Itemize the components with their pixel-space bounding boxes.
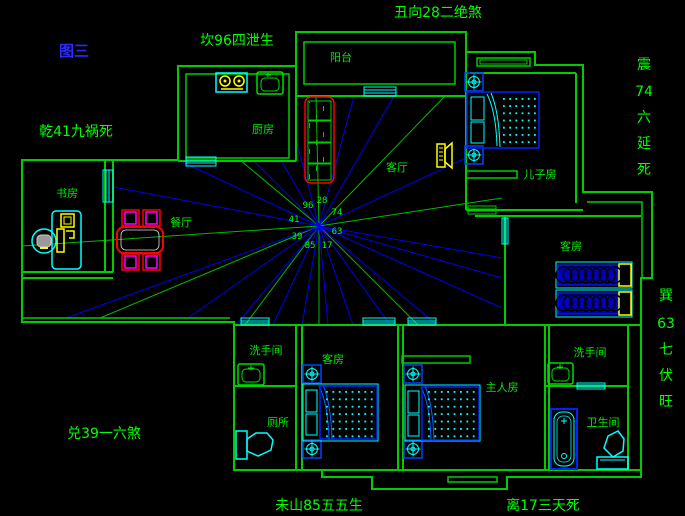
son-shelf	[466, 171, 517, 178]
stove	[216, 73, 247, 92]
guest-right-beds	[556, 262, 632, 317]
svg-text:延: 延	[637, 136, 651, 152]
guest-bottom-window	[363, 318, 395, 325]
kitchen-inner	[186, 74, 289, 158]
annotation-south-mountain: 未山85五五生	[275, 498, 363, 514]
annotation-south: 离17三天死	[506, 497, 580, 514]
svg-text:死: 死	[637, 162, 651, 178]
compass-number-w: 41	[289, 215, 300, 225]
compass-number-e: 63	[332, 227, 343, 237]
room-label-washroom-right: 洗手间	[574, 345, 607, 359]
fengshui-annotations: 图三 坎96四泄生 丑向28二绝煞 乾41九祸死 兑39一六煞 未山85五五生 …	[39, 5, 675, 514]
bathtub	[551, 409, 577, 469]
annotation-east: 震 74 六 延 死	[635, 57, 653, 178]
svg-text:震: 震	[637, 57, 651, 73]
room-label-washroom-left: 洗手间	[250, 343, 283, 357]
tv	[437, 143, 452, 168]
compass-number-se: 17	[322, 241, 333, 251]
porch-step	[448, 477, 497, 482]
compass-number-n: 28	[317, 196, 328, 206]
svg-text:七: 七	[659, 342, 673, 358]
sofa	[305, 97, 334, 183]
study-walls	[22, 160, 113, 278]
room-label-son: 儿子房	[524, 168, 557, 181]
compass-number-sw: 39	[292, 232, 303, 242]
entry-shelf	[477, 58, 530, 66]
lamp-icon	[465, 73, 483, 91]
room-label-guest-bottom: 客房	[322, 352, 344, 366]
svg-text:六: 六	[637, 110, 651, 126]
lamp-icon	[404, 440, 422, 458]
lamp-icon	[303, 440, 321, 458]
annotation-west-lower: 兑39一六煞	[67, 426, 141, 442]
svg-text:旺: 旺	[659, 394, 673, 410]
room-label-master: 主人房	[486, 381, 519, 394]
balcony-inner	[304, 42, 455, 84]
room-label-kitchen: 厨房	[252, 123, 274, 136]
lamp-icon	[303, 365, 321, 383]
ceiling-lamp-icons	[303, 73, 483, 458]
washroom-left-sink	[238, 364, 264, 385]
room-label-guest-right: 客房	[560, 239, 582, 253]
annotation-north: 坎96四泄生	[200, 33, 274, 49]
washroom-right-sink	[548, 363, 573, 384]
toilet-left	[236, 431, 273, 459]
son-bed	[467, 92, 539, 148]
entry-shelf-inner	[480, 60, 527, 64]
lamp-icon	[404, 365, 422, 383]
toilet-right	[597, 431, 628, 469]
room-label-balcony: 阳台	[330, 50, 352, 64]
room-label-bathroom: 卫生间	[587, 415, 620, 429]
dining-set	[117, 210, 163, 270]
cad-floorplan-canvas: 41 96 28 74 63 17 85 39 阳台 厨房 客厅 儿子房 书房 …	[0, 0, 685, 516]
floorplan-drawing: 41 96 28 74 63 17 85 39 阳台 厨房 客厅 儿子房 书房 …	[0, 0, 685, 516]
guest-bottom-bed	[303, 384, 378, 441]
room-label-living: 客厅	[386, 160, 408, 174]
annotation-southeast: 巽 63 七 伏 旺	[657, 288, 675, 410]
svg-text:63: 63	[657, 316, 675, 332]
living-balcony-window	[364, 87, 396, 96]
room-label-toilet: 厕所	[267, 416, 289, 429]
figure-label: 图三	[59, 42, 89, 60]
study-desk	[32, 211, 81, 269]
annotation-northeast: 丑向28二绝煞	[394, 5, 482, 21]
compass-number-ne: 74	[332, 208, 343, 218]
master-bed	[405, 385, 480, 441]
room-label-dining: 餐厅	[170, 215, 192, 229]
annotation-west-upper: 乾41九祸死	[39, 124, 113, 140]
master-shelf	[402, 356, 470, 363]
compass-number-nw: 96	[303, 201, 314, 211]
kitchen-sink	[257, 72, 283, 94]
svg-text:巽: 巽	[659, 288, 673, 304]
room-label-study: 书房	[56, 187, 78, 200]
svg-text:伏: 伏	[659, 368, 673, 384]
svg-text:74: 74	[635, 84, 653, 100]
compass-number-s: 85	[305, 241, 316, 251]
